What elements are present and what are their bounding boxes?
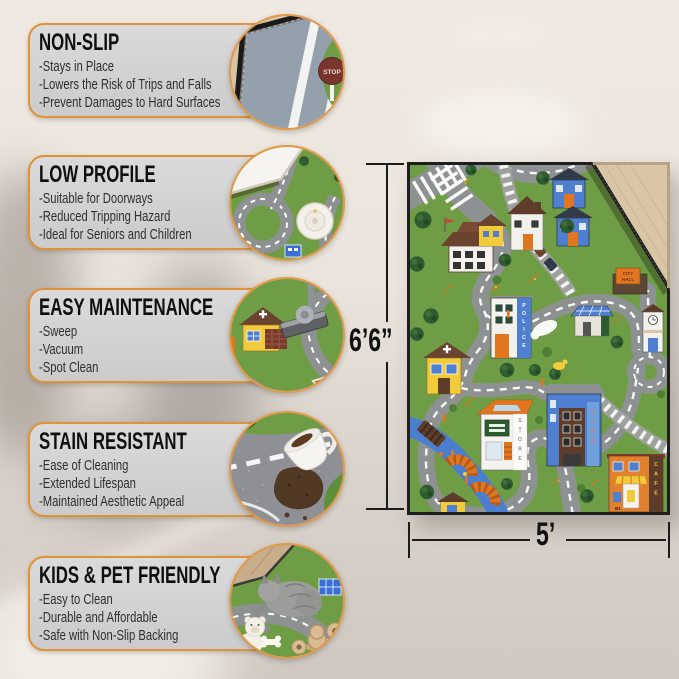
height-dimension-label: 6’6” (349, 322, 393, 359)
feature-line: -Sweep (39, 323, 248, 341)
police-station: POLICE (489, 296, 533, 358)
ceiling-lamp-stem (494, 28, 501, 100)
feature-photo-spilled-cup-icon (229, 411, 345, 527)
feature-line: -Durable and Affordable (39, 609, 248, 627)
stop-sign-label: STOP (323, 69, 341, 76)
product-rug-image: POLICE CITY HALL (407, 162, 670, 515)
cafe-building: CAFE B1 (607, 454, 665, 512)
dimension-tick (366, 163, 404, 165)
feature-line: -Vacuum (39, 341, 248, 359)
product-infographic: NON-SLIP -Stays in Place -Lowers the Ris… (0, 0, 679, 679)
feature-title: STAIN RESISTANT (39, 429, 234, 454)
feature-photo-vacuum-head-icon (229, 277, 345, 393)
dimension-line (412, 539, 530, 541)
store-building: STORE (477, 400, 533, 470)
ceiling-lamp-shade (418, 92, 583, 154)
dimension-line (386, 362, 388, 510)
feature-photo-rug-corner-stop-sign-icon: STOP (229, 14, 345, 130)
feature-title: LOW PROFILE (39, 162, 234, 187)
city-hall-label-line1: CITY (623, 271, 633, 276)
feature-line: -Lowers the Risk of Trips and Falls (39, 76, 248, 94)
feature-line: -Extended Lifespan (39, 475, 248, 493)
dimension-line (386, 164, 388, 322)
feature-line: -Ease of Cleaning (39, 457, 248, 475)
feature-line: -Stays in Place (39, 58, 248, 76)
city-hall-label-line2: HALL (622, 277, 634, 282)
play-rug-graphic: POLICE CITY HALL (407, 162, 670, 515)
dimension-tick (366, 508, 404, 510)
feature-title: KIDS & PET FRIENDLY (39, 563, 234, 588)
feature-title: NON-SLIP (39, 30, 234, 55)
dimension-tick (408, 522, 410, 558)
feature-line: -Prevent Damages to Hard Surfaces (39, 94, 248, 112)
dimension-tick (668, 522, 670, 558)
solar-roof-house (571, 306, 613, 336)
feature-line: -Spot Clean (39, 359, 248, 377)
feature-line: -Reduced Tripping Hazard (39, 208, 248, 226)
clock-tower (641, 304, 665, 352)
ceiling-lamp-canopy (455, 22, 543, 52)
width-dimension-label: 5’ (536, 516, 555, 553)
cafe-sub-label: B1 (615, 506, 621, 511)
feature-title: EASY MAINTENANCE (39, 295, 234, 320)
feature-line: -Maintained Aesthetic Appeal (39, 493, 248, 511)
feature-line: -Easy to Clean (39, 591, 248, 609)
feature-line: -Suitable for Doorways (39, 190, 248, 208)
feature-line: -Ideal for Seniors and Children (39, 226, 248, 244)
feature-photo-door-robot-vacuum-icon (229, 145, 345, 261)
dimension-line (566, 539, 666, 541)
feature-photo-cat-and-toys-icon (229, 543, 345, 659)
fire-station: FIRE (543, 384, 605, 466)
feature-line: -Safe with Non-Slip Backing (39, 627, 248, 645)
